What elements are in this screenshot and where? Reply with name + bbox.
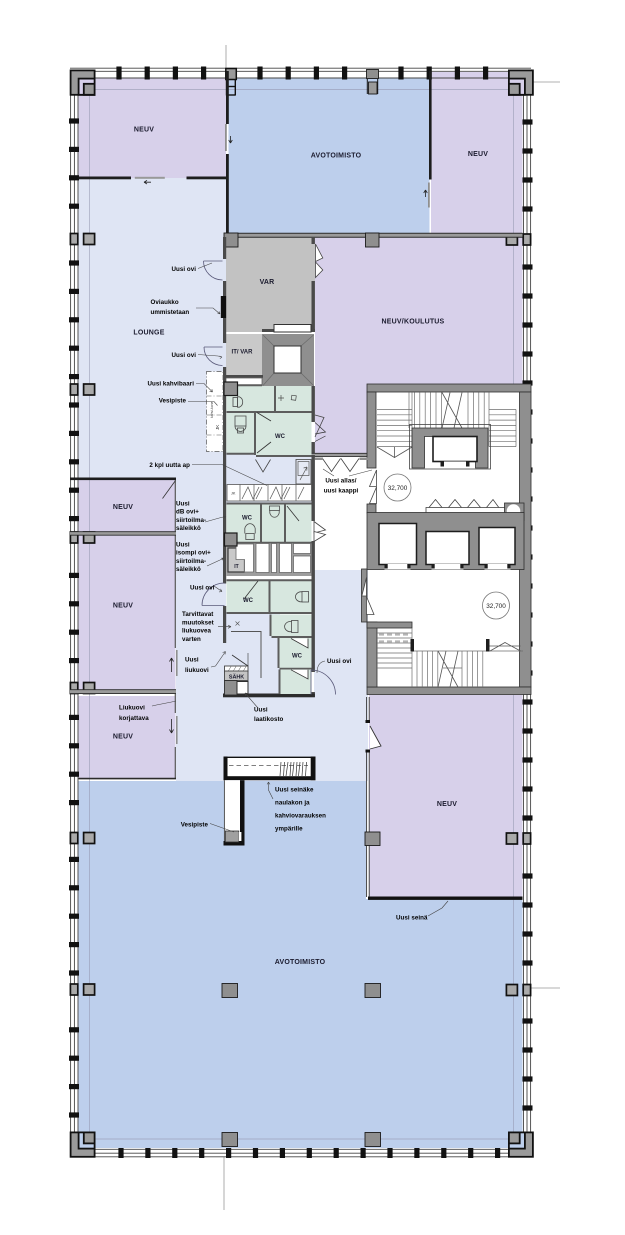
svg-text:Tarvittavat: Tarvittavat bbox=[182, 611, 213, 618]
svg-text:Uusi: Uusi bbox=[176, 501, 190, 508]
svg-text:2 kpl uutta ap: 2 kpl uutta ap bbox=[149, 462, 190, 469]
svg-text:WC: WC bbox=[275, 434, 286, 440]
svg-text:liukuovi: liukuovi bbox=[185, 667, 209, 674]
svg-text:IT/ VAR: IT/ VAR bbox=[232, 350, 254, 356]
svg-text:korjattava: korjattava bbox=[119, 715, 149, 722]
svg-text:VAR: VAR bbox=[260, 279, 275, 286]
svg-text:JK: JK bbox=[231, 492, 236, 496]
svg-text:WC: WC bbox=[242, 516, 253, 522]
svg-text:NEUV: NEUV bbox=[134, 127, 154, 134]
svg-text:Uusi: Uusi bbox=[254, 707, 268, 714]
svg-text:AVOTOIMISTO: AVOTOIMISTO bbox=[311, 153, 362, 160]
svg-text:Uusi seinä: Uusi seinä bbox=[396, 915, 428, 922]
svg-text:Uusi: Uusi bbox=[176, 542, 190, 549]
svg-text:JK: JK bbox=[215, 424, 220, 430]
svg-text:NEUV: NEUV bbox=[113, 504, 133, 511]
svg-text:Vesipiste: Vesipiste bbox=[159, 398, 187, 405]
svg-text:Uusi ovi: Uusi ovi bbox=[327, 658, 352, 665]
svg-text:Uusi ovi: Uusi ovi bbox=[172, 352, 197, 359]
svg-text:NEUV: NEUV bbox=[437, 801, 457, 808]
svg-text:WC: WC bbox=[243, 598, 254, 604]
svg-text:muutokset: muutokset bbox=[182, 619, 214, 626]
svg-text:Oviaukko: Oviaukko bbox=[151, 299, 179, 306]
svg-text:liukuovea: liukuovea bbox=[182, 628, 212, 635]
svg-text:Uusi: Uusi bbox=[185, 657, 199, 664]
svg-text:säleikkö: säleikkö bbox=[176, 566, 201, 573]
svg-text:varten: varten bbox=[182, 636, 201, 643]
svg-text:Liukuovi: Liukuovi bbox=[119, 705, 145, 712]
svg-text:kahviovarauksen: kahviovarauksen bbox=[275, 813, 326, 820]
svg-text:NEUV: NEUV bbox=[468, 151, 488, 158]
svg-text:IT: IT bbox=[234, 564, 238, 570]
svg-text:32,700: 32,700 bbox=[388, 485, 408, 492]
svg-text:naulakon ja: naulakon ja bbox=[275, 800, 310, 807]
svg-text:siirtoilma-: siirtoilma- bbox=[176, 517, 206, 524]
svg-text:Uusi allas/: Uusi allas/ bbox=[325, 478, 356, 485]
svg-text:dB ovi+: dB ovi+ bbox=[176, 509, 199, 516]
svg-text:kahvi-kone: kahvi-kone bbox=[210, 401, 214, 418]
svg-text:Uusi seinäke: Uusi seinäke bbox=[275, 787, 314, 794]
svg-text:Vesipiste: Vesipiste bbox=[181, 822, 209, 829]
svg-text:AVOTOIMISTO: AVOTOIMISTO bbox=[275, 959, 326, 966]
svg-text:Uusi kahvibaari: Uusi kahvibaari bbox=[148, 381, 195, 388]
svg-text:säleikkö: säleikkö bbox=[176, 525, 201, 532]
svg-text:SÄHK: SÄHK bbox=[229, 674, 244, 681]
svg-text:Uusi ovi: Uusi ovi bbox=[172, 266, 197, 273]
svg-text:laatikosto: laatikosto bbox=[254, 716, 284, 723]
svg-text:ympärille: ympärille bbox=[275, 826, 303, 833]
svg-text:LOUNGE: LOUNGE bbox=[133, 330, 164, 337]
svg-text:uusi kaappi: uusi kaappi bbox=[324, 488, 359, 495]
svg-text:siirtoilma-: siirtoilma- bbox=[176, 558, 206, 565]
svg-text:32,700: 32,700 bbox=[486, 603, 506, 610]
svg-text:NEUV: NEUV bbox=[113, 734, 133, 741]
svg-text:NEUV: NEUV bbox=[113, 603, 133, 610]
svg-text:NEUV/KOULUTUS: NEUV/KOULUTUS bbox=[382, 319, 445, 326]
svg-text:Uusi ovi: Uusi ovi bbox=[190, 585, 215, 592]
svg-text:WC: WC bbox=[292, 654, 303, 660]
svg-text:ummistetaan: ummistetaan bbox=[151, 309, 190, 316]
svg-text:isompi ovi+: isompi ovi+ bbox=[176, 550, 211, 557]
